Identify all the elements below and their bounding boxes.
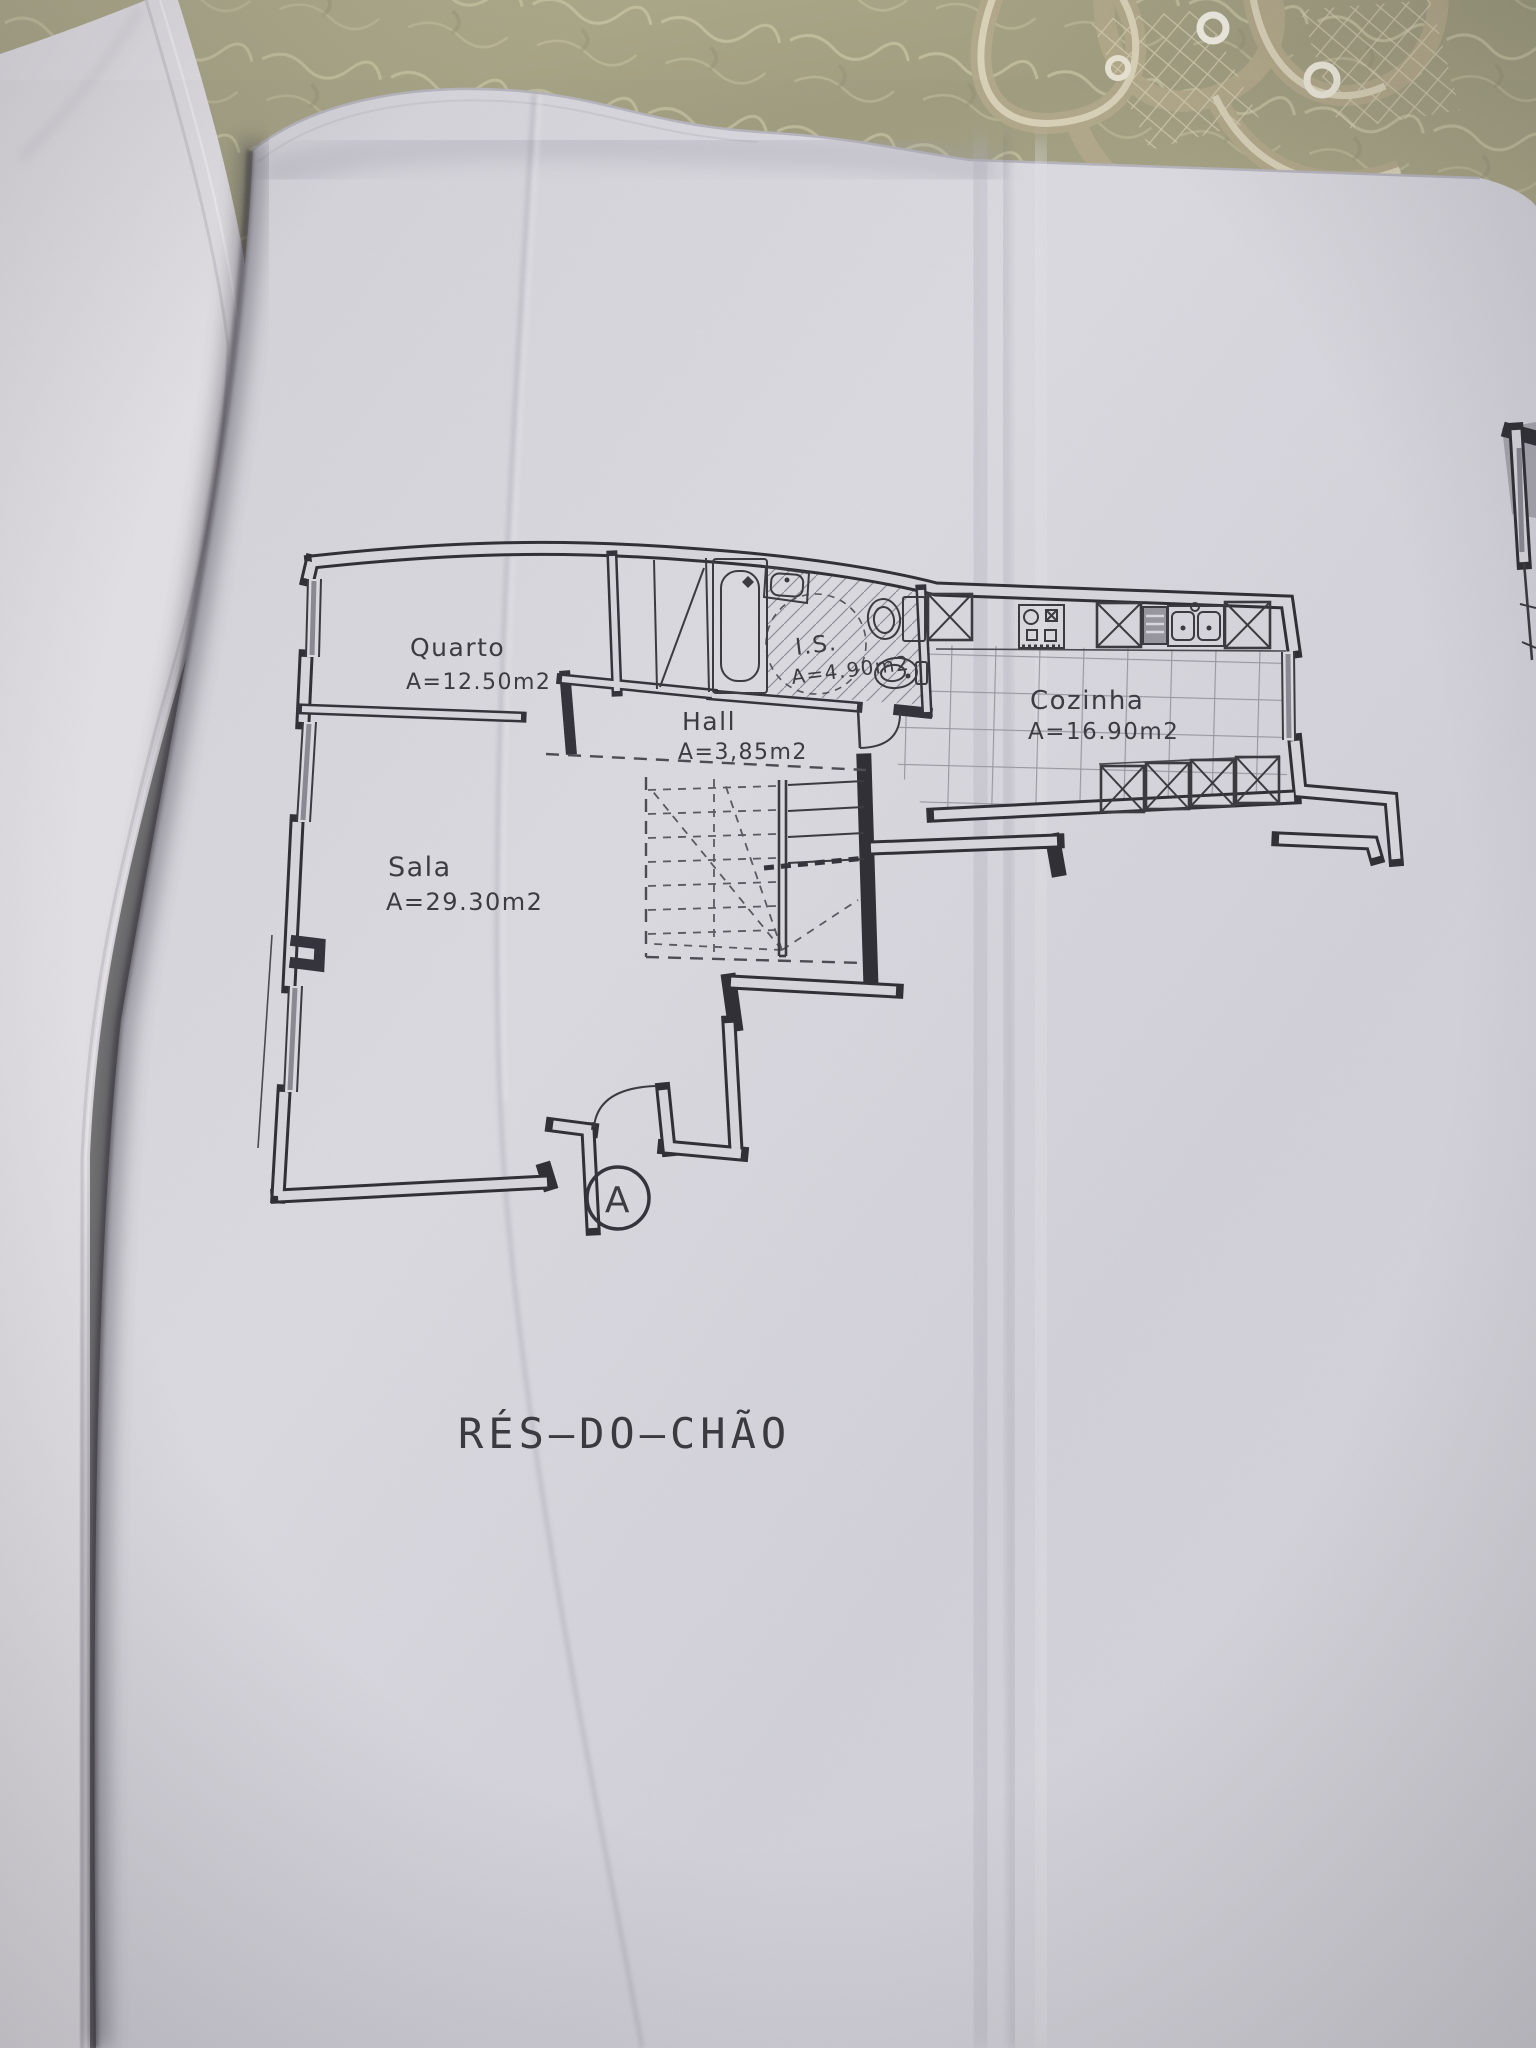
photo-floor-plan-page: { "floor_plan": { "title": "RÉS—DO—CHÃO"… [0, 0, 1536, 2048]
vignette [0, 0, 1536, 2048]
scene: A Quarto A=12.50m2 Sala A=29.30m2 Hall A… [0, 0, 1536, 2048]
